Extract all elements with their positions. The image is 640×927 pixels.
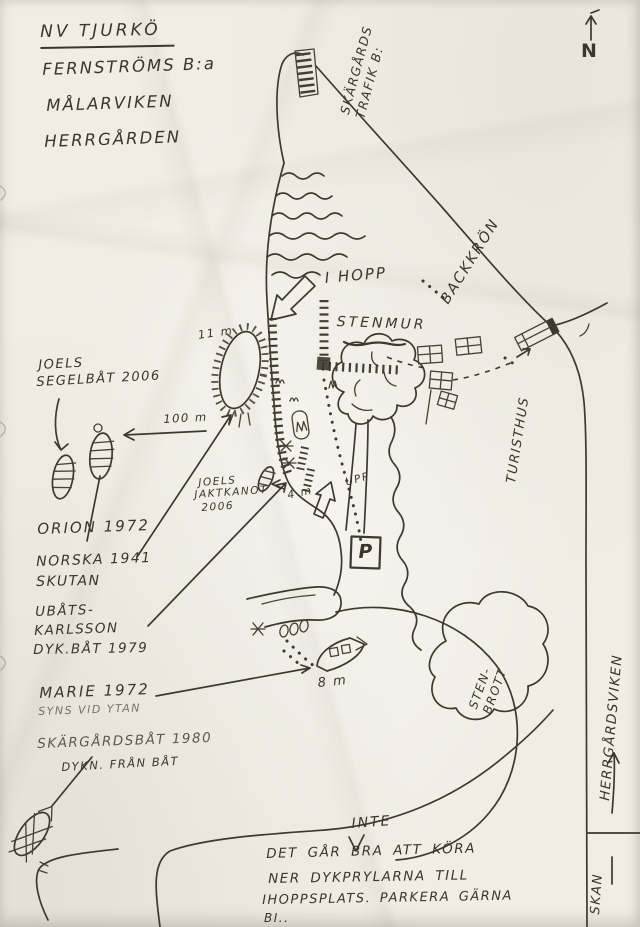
ubats-line1: UBÅTS- [35, 602, 95, 621]
note-line2: NER DYKPRYLARNA TILL [268, 867, 469, 887]
stenmur-label: STENMUR [336, 314, 426, 335]
turisthus-building [515, 318, 559, 350]
skan-label: SKAN [588, 873, 607, 915]
inlet-pier [295, 49, 318, 97]
note-line4: BI.. [264, 911, 289, 926]
map-title-line1: NV TJURKÖ [40, 20, 175, 50]
jaktkanot-line3: 2006 [201, 500, 235, 515]
ihopp-arrow-icon [271, 276, 315, 320]
compass-north-label: N [581, 40, 598, 64]
wreck-skargardsbat [6, 799, 63, 873]
ubats-line3: DYK.BÅT 1979 [33, 640, 148, 659]
note-inserted-word: INTE [351, 813, 392, 833]
joels-segelbat-line1: JOELS [38, 356, 84, 375]
north-arrow-icon [586, 10, 599, 40]
norska-line2: SKUTAN [36, 573, 101, 592]
water-waves [267, 173, 365, 278]
upp-arrow-icon [314, 482, 335, 518]
pointer-lines [52, 349, 619, 884]
hand-drawn-dive-map: NV TJURKÖ FERNSTRÖMS B:a MÅLARVIKEN HERR… [0, 0, 640, 927]
marie-line1: MARIE 1972 [39, 680, 150, 703]
ubats-line2: KARLSSON [34, 620, 119, 640]
coastline [37, 53, 640, 927]
tree [332, 334, 424, 533]
jetty [247, 587, 341, 638]
paper-artifact [0, 186, 5, 670]
stone-wall [317, 300, 405, 370]
parking-sign-letter: P [358, 540, 374, 564]
boat-joels-segelbat [49, 454, 77, 501]
shore-hatching [272, 318, 289, 477]
boat-orion [88, 424, 116, 480]
orion-label: ORION 1972 [37, 516, 150, 539]
depth-8m-label: 8 m [317, 673, 348, 692]
boat-8m [317, 637, 367, 671]
distance-100m-label: 100 m [163, 410, 208, 427]
